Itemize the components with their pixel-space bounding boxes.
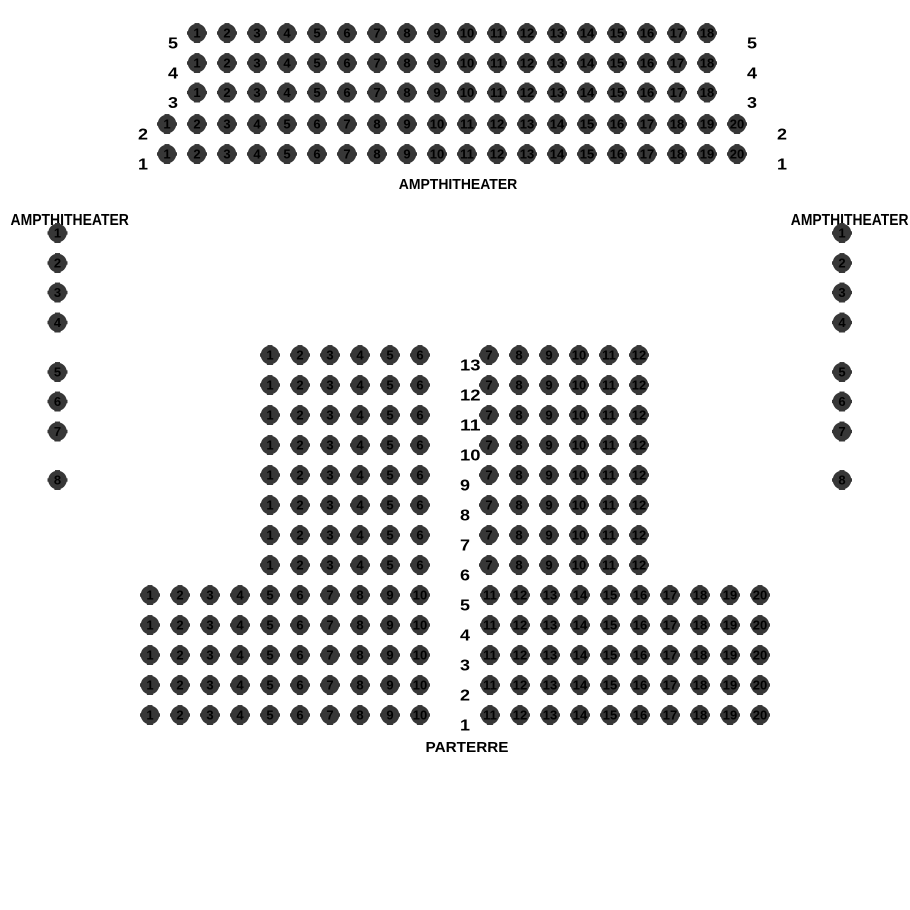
svg-text:4: 4 bbox=[356, 348, 364, 363]
svg-text:18: 18 bbox=[693, 648, 707, 663]
svg-text:11: 11 bbox=[602, 498, 616, 513]
svg-text:11: 11 bbox=[483, 678, 497, 693]
svg-text:6: 6 bbox=[416, 438, 423, 453]
svg-text:12: 12 bbox=[460, 387, 481, 404]
svg-text:10: 10 bbox=[413, 648, 427, 663]
svg-text:11: 11 bbox=[602, 468, 616, 483]
svg-text:20: 20 bbox=[753, 708, 767, 723]
svg-text:5: 5 bbox=[386, 558, 393, 573]
svg-text:17: 17 bbox=[663, 588, 677, 603]
svg-text:1: 1 bbox=[54, 226, 61, 241]
svg-text:8: 8 bbox=[373, 117, 380, 132]
svg-text:9: 9 bbox=[386, 708, 393, 723]
svg-text:17: 17 bbox=[663, 618, 677, 633]
svg-text:5: 5 bbox=[386, 438, 393, 453]
svg-text:12: 12 bbox=[632, 528, 646, 543]
svg-text:8: 8 bbox=[373, 147, 380, 162]
svg-text:5: 5 bbox=[168, 35, 178, 52]
svg-text:11: 11 bbox=[490, 26, 504, 41]
svg-text:12: 12 bbox=[520, 56, 534, 71]
svg-text:16: 16 bbox=[633, 678, 647, 693]
svg-text:4: 4 bbox=[356, 528, 364, 543]
svg-text:11: 11 bbox=[602, 378, 616, 393]
svg-text:15: 15 bbox=[610, 56, 624, 71]
svg-text:15: 15 bbox=[603, 588, 617, 603]
svg-text:18: 18 bbox=[700, 85, 714, 100]
svg-text:2: 2 bbox=[223, 56, 230, 71]
svg-text:11: 11 bbox=[602, 348, 616, 363]
svg-text:2: 2 bbox=[296, 408, 303, 423]
svg-text:10: 10 bbox=[572, 498, 586, 513]
svg-text:3: 3 bbox=[206, 588, 213, 603]
svg-text:19: 19 bbox=[700, 117, 714, 132]
svg-text:7: 7 bbox=[373, 85, 380, 100]
svg-text:8: 8 bbox=[356, 618, 363, 633]
svg-text:1: 1 bbox=[193, 85, 200, 100]
svg-text:2: 2 bbox=[296, 468, 303, 483]
svg-text:AMPTHITHEATER: AMPTHITHEATER bbox=[791, 212, 909, 229]
svg-text:2: 2 bbox=[54, 256, 61, 271]
svg-text:3: 3 bbox=[838, 285, 845, 300]
svg-text:7: 7 bbox=[485, 408, 492, 423]
svg-text:12: 12 bbox=[632, 408, 646, 423]
svg-text:11: 11 bbox=[460, 117, 474, 132]
svg-text:2: 2 bbox=[296, 438, 303, 453]
svg-text:7: 7 bbox=[485, 528, 492, 543]
svg-text:12: 12 bbox=[632, 348, 646, 363]
svg-text:10: 10 bbox=[572, 348, 586, 363]
svg-text:4: 4 bbox=[283, 56, 291, 71]
svg-text:13: 13 bbox=[543, 618, 557, 633]
svg-text:1: 1 bbox=[838, 226, 845, 241]
svg-text:15: 15 bbox=[603, 618, 617, 633]
svg-text:5: 5 bbox=[266, 648, 273, 663]
svg-text:5: 5 bbox=[386, 378, 393, 393]
svg-text:1: 1 bbox=[460, 717, 470, 734]
svg-text:3: 3 bbox=[326, 468, 333, 483]
svg-text:7: 7 bbox=[326, 618, 333, 633]
svg-text:14: 14 bbox=[580, 56, 595, 71]
svg-text:6: 6 bbox=[460, 567, 470, 584]
svg-text:6: 6 bbox=[416, 498, 423, 513]
svg-text:5: 5 bbox=[313, 56, 320, 71]
svg-text:3: 3 bbox=[326, 558, 333, 573]
svg-text:6: 6 bbox=[313, 147, 320, 162]
svg-text:20: 20 bbox=[753, 648, 767, 663]
svg-text:13: 13 bbox=[550, 56, 564, 71]
svg-text:14: 14 bbox=[573, 588, 588, 603]
svg-text:8: 8 bbox=[403, 56, 410, 71]
svg-text:4: 4 bbox=[54, 315, 62, 330]
svg-text:1: 1 bbox=[777, 156, 787, 173]
svg-text:12: 12 bbox=[632, 468, 646, 483]
svg-text:15: 15 bbox=[580, 147, 594, 162]
svg-text:1: 1 bbox=[266, 528, 273, 543]
svg-text:5: 5 bbox=[266, 708, 273, 723]
svg-text:18: 18 bbox=[700, 56, 714, 71]
svg-text:12: 12 bbox=[513, 618, 527, 633]
svg-text:2: 2 bbox=[838, 256, 845, 271]
svg-text:18: 18 bbox=[693, 588, 707, 603]
svg-text:3: 3 bbox=[747, 95, 757, 112]
svg-text:20: 20 bbox=[730, 147, 744, 162]
svg-text:3: 3 bbox=[326, 438, 333, 453]
svg-text:9: 9 bbox=[545, 468, 552, 483]
svg-text:16: 16 bbox=[633, 588, 647, 603]
svg-text:8: 8 bbox=[515, 378, 522, 393]
svg-text:18: 18 bbox=[700, 26, 714, 41]
svg-text:1: 1 bbox=[266, 558, 273, 573]
svg-text:14: 14 bbox=[580, 85, 595, 100]
svg-text:3: 3 bbox=[460, 657, 470, 674]
svg-text:6: 6 bbox=[343, 26, 350, 41]
svg-text:2: 2 bbox=[193, 147, 200, 162]
svg-text:4: 4 bbox=[356, 468, 364, 483]
svg-text:6: 6 bbox=[54, 394, 61, 409]
svg-text:9: 9 bbox=[460, 477, 470, 494]
svg-text:1: 1 bbox=[163, 147, 170, 162]
svg-text:4: 4 bbox=[236, 708, 244, 723]
svg-text:PARTERRE: PARTERRE bbox=[426, 739, 509, 756]
svg-text:1: 1 bbox=[146, 708, 153, 723]
svg-text:5: 5 bbox=[747, 35, 757, 52]
svg-text:16: 16 bbox=[640, 56, 654, 71]
svg-text:9: 9 bbox=[545, 528, 552, 543]
svg-text:11: 11 bbox=[483, 588, 497, 603]
svg-text:9: 9 bbox=[403, 117, 410, 132]
svg-text:11: 11 bbox=[483, 618, 497, 633]
svg-text:5: 5 bbox=[54, 365, 61, 380]
svg-text:6: 6 bbox=[343, 85, 350, 100]
svg-text:9: 9 bbox=[545, 438, 552, 453]
svg-text:11: 11 bbox=[602, 528, 616, 543]
svg-text:19: 19 bbox=[700, 147, 714, 162]
svg-text:6: 6 bbox=[416, 348, 423, 363]
svg-text:19: 19 bbox=[723, 588, 737, 603]
svg-text:16: 16 bbox=[610, 147, 624, 162]
svg-text:7: 7 bbox=[326, 708, 333, 723]
svg-text:1: 1 bbox=[146, 678, 153, 693]
svg-text:AMPTHITHEATER: AMPTHITHEATER bbox=[399, 176, 518, 193]
svg-text:8: 8 bbox=[515, 528, 522, 543]
svg-text:2: 2 bbox=[296, 378, 303, 393]
svg-text:17: 17 bbox=[663, 678, 677, 693]
svg-text:9: 9 bbox=[386, 618, 393, 633]
svg-text:1: 1 bbox=[193, 26, 200, 41]
svg-text:5: 5 bbox=[266, 678, 273, 693]
svg-text:5: 5 bbox=[283, 147, 290, 162]
svg-text:2: 2 bbox=[296, 558, 303, 573]
svg-text:11: 11 bbox=[460, 147, 474, 162]
svg-text:9: 9 bbox=[545, 378, 552, 393]
svg-text:17: 17 bbox=[640, 147, 654, 162]
svg-text:14: 14 bbox=[573, 618, 588, 633]
svg-text:12: 12 bbox=[513, 588, 527, 603]
svg-text:13: 13 bbox=[460, 357, 481, 374]
svg-text:17: 17 bbox=[663, 708, 677, 723]
svg-text:9: 9 bbox=[545, 498, 552, 513]
svg-text:9: 9 bbox=[545, 408, 552, 423]
svg-text:10: 10 bbox=[430, 147, 444, 162]
svg-text:11: 11 bbox=[602, 438, 616, 453]
svg-text:9: 9 bbox=[386, 678, 393, 693]
svg-text:4: 4 bbox=[356, 558, 364, 573]
svg-text:4: 4 bbox=[253, 147, 261, 162]
svg-text:2: 2 bbox=[223, 85, 230, 100]
svg-text:5: 5 bbox=[266, 588, 273, 603]
svg-text:7: 7 bbox=[373, 26, 380, 41]
svg-text:1: 1 bbox=[193, 56, 200, 71]
svg-text:5: 5 bbox=[386, 528, 393, 543]
svg-text:2: 2 bbox=[777, 126, 787, 143]
svg-text:10: 10 bbox=[460, 26, 474, 41]
svg-text:3: 3 bbox=[253, 26, 260, 41]
svg-text:4: 4 bbox=[356, 378, 364, 393]
svg-text:16: 16 bbox=[633, 648, 647, 663]
svg-text:20: 20 bbox=[753, 618, 767, 633]
svg-text:4: 4 bbox=[356, 438, 364, 453]
svg-text:1: 1 bbox=[266, 438, 273, 453]
svg-text:3: 3 bbox=[326, 408, 333, 423]
svg-text:13: 13 bbox=[543, 588, 557, 603]
svg-text:17: 17 bbox=[670, 56, 684, 71]
svg-text:14: 14 bbox=[573, 678, 588, 693]
svg-text:18: 18 bbox=[693, 678, 707, 693]
svg-text:15: 15 bbox=[603, 648, 617, 663]
svg-text:12: 12 bbox=[513, 648, 527, 663]
svg-text:1: 1 bbox=[138, 156, 148, 173]
svg-text:19: 19 bbox=[723, 618, 737, 633]
svg-text:5: 5 bbox=[313, 85, 320, 100]
svg-text:12: 12 bbox=[520, 26, 534, 41]
svg-text:2: 2 bbox=[176, 588, 183, 603]
svg-text:8: 8 bbox=[356, 708, 363, 723]
svg-text:16: 16 bbox=[633, 618, 647, 633]
svg-text:5: 5 bbox=[266, 618, 273, 633]
svg-text:13: 13 bbox=[550, 26, 564, 41]
svg-text:14: 14 bbox=[573, 708, 588, 723]
svg-text:10: 10 bbox=[413, 588, 427, 603]
svg-text:3: 3 bbox=[326, 348, 333, 363]
svg-text:19: 19 bbox=[723, 678, 737, 693]
svg-text:7: 7 bbox=[373, 56, 380, 71]
svg-text:7: 7 bbox=[326, 648, 333, 663]
svg-text:7: 7 bbox=[485, 378, 492, 393]
svg-text:9: 9 bbox=[545, 348, 552, 363]
svg-text:16: 16 bbox=[640, 26, 654, 41]
svg-text:5: 5 bbox=[386, 348, 393, 363]
svg-text:3: 3 bbox=[326, 528, 333, 543]
svg-text:9: 9 bbox=[386, 648, 393, 663]
svg-text:2: 2 bbox=[176, 678, 183, 693]
svg-text:7: 7 bbox=[485, 498, 492, 513]
svg-text:8: 8 bbox=[515, 438, 522, 453]
svg-text:6: 6 bbox=[296, 678, 303, 693]
svg-text:12: 12 bbox=[490, 117, 504, 132]
svg-text:18: 18 bbox=[693, 708, 707, 723]
svg-text:1: 1 bbox=[163, 117, 170, 132]
svg-text:11: 11 bbox=[490, 56, 504, 71]
svg-text:6: 6 bbox=[313, 117, 320, 132]
svg-text:17: 17 bbox=[670, 85, 684, 100]
svg-text:8: 8 bbox=[403, 85, 410, 100]
svg-text:12: 12 bbox=[632, 558, 646, 573]
svg-text:8: 8 bbox=[356, 648, 363, 663]
svg-text:11: 11 bbox=[602, 558, 616, 573]
svg-text:13: 13 bbox=[543, 708, 557, 723]
svg-text:8: 8 bbox=[515, 558, 522, 573]
svg-text:12: 12 bbox=[632, 378, 646, 393]
svg-text:4: 4 bbox=[253, 117, 261, 132]
svg-text:10: 10 bbox=[572, 558, 586, 573]
svg-text:6: 6 bbox=[296, 708, 303, 723]
svg-text:11: 11 bbox=[602, 408, 616, 423]
svg-text:9: 9 bbox=[403, 147, 410, 162]
svg-text:10: 10 bbox=[460, 85, 474, 100]
svg-text:20: 20 bbox=[730, 117, 744, 132]
svg-text:19: 19 bbox=[723, 648, 737, 663]
svg-text:6: 6 bbox=[296, 618, 303, 633]
svg-text:3: 3 bbox=[206, 708, 213, 723]
svg-text:2: 2 bbox=[223, 26, 230, 41]
svg-text:14: 14 bbox=[550, 117, 565, 132]
svg-text:8: 8 bbox=[54, 473, 61, 488]
svg-text:3: 3 bbox=[54, 285, 61, 300]
svg-text:4: 4 bbox=[460, 627, 470, 644]
svg-text:10: 10 bbox=[572, 528, 586, 543]
svg-text:2: 2 bbox=[296, 498, 303, 513]
svg-text:6: 6 bbox=[296, 648, 303, 663]
svg-text:9: 9 bbox=[433, 56, 440, 71]
svg-text:2: 2 bbox=[460, 687, 470, 704]
svg-text:1: 1 bbox=[266, 348, 273, 363]
svg-text:9: 9 bbox=[433, 26, 440, 41]
svg-text:4: 4 bbox=[356, 498, 364, 513]
svg-text:7: 7 bbox=[485, 468, 492, 483]
svg-text:4: 4 bbox=[283, 85, 291, 100]
svg-text:8: 8 bbox=[838, 473, 845, 488]
svg-text:10: 10 bbox=[572, 408, 586, 423]
svg-text:15: 15 bbox=[603, 708, 617, 723]
svg-text:4: 4 bbox=[236, 588, 244, 603]
svg-text:6: 6 bbox=[838, 394, 845, 409]
svg-text:10: 10 bbox=[460, 447, 481, 464]
svg-text:17: 17 bbox=[640, 117, 654, 132]
svg-text:2: 2 bbox=[176, 618, 183, 633]
svg-text:18: 18 bbox=[693, 618, 707, 633]
svg-text:4: 4 bbox=[236, 678, 244, 693]
svg-text:6: 6 bbox=[416, 528, 423, 543]
svg-text:13: 13 bbox=[520, 117, 534, 132]
svg-text:6: 6 bbox=[416, 558, 423, 573]
svg-text:2: 2 bbox=[176, 708, 183, 723]
svg-text:12: 12 bbox=[632, 438, 646, 453]
svg-text:7: 7 bbox=[485, 558, 492, 573]
svg-text:7: 7 bbox=[343, 117, 350, 132]
svg-text:5: 5 bbox=[386, 498, 393, 513]
svg-text:12: 12 bbox=[632, 498, 646, 513]
svg-text:7: 7 bbox=[460, 537, 470, 554]
svg-text:4: 4 bbox=[236, 648, 244, 663]
svg-text:16: 16 bbox=[633, 708, 647, 723]
svg-text:3: 3 bbox=[206, 648, 213, 663]
svg-text:9: 9 bbox=[433, 85, 440, 100]
svg-text:4: 4 bbox=[168, 65, 178, 82]
svg-text:2: 2 bbox=[296, 528, 303, 543]
svg-text:12: 12 bbox=[513, 708, 527, 723]
svg-text:10: 10 bbox=[413, 618, 427, 633]
svg-text:5: 5 bbox=[386, 408, 393, 423]
svg-text:5: 5 bbox=[283, 117, 290, 132]
svg-text:15: 15 bbox=[610, 85, 624, 100]
svg-text:14: 14 bbox=[550, 147, 565, 162]
svg-text:8: 8 bbox=[515, 468, 522, 483]
svg-text:3: 3 bbox=[168, 95, 178, 112]
svg-text:19: 19 bbox=[723, 708, 737, 723]
svg-text:6: 6 bbox=[416, 408, 423, 423]
svg-text:4: 4 bbox=[283, 26, 291, 41]
svg-text:15: 15 bbox=[580, 117, 594, 132]
svg-text:13: 13 bbox=[550, 85, 564, 100]
svg-text:5: 5 bbox=[386, 468, 393, 483]
svg-text:7: 7 bbox=[343, 147, 350, 162]
svg-text:10: 10 bbox=[572, 378, 586, 393]
svg-text:2: 2 bbox=[296, 348, 303, 363]
svg-text:2: 2 bbox=[138, 126, 148, 143]
svg-text:10: 10 bbox=[572, 468, 586, 483]
svg-text:18: 18 bbox=[670, 117, 684, 132]
svg-text:14: 14 bbox=[580, 26, 595, 41]
svg-text:12: 12 bbox=[513, 678, 527, 693]
svg-text:3: 3 bbox=[223, 147, 230, 162]
svg-text:8: 8 bbox=[356, 588, 363, 603]
svg-text:14: 14 bbox=[573, 648, 588, 663]
svg-text:1: 1 bbox=[146, 618, 153, 633]
svg-text:3: 3 bbox=[206, 618, 213, 633]
svg-text:10: 10 bbox=[572, 438, 586, 453]
svg-text:2: 2 bbox=[176, 648, 183, 663]
svg-text:5: 5 bbox=[313, 26, 320, 41]
svg-text:18: 18 bbox=[670, 147, 684, 162]
svg-text:10: 10 bbox=[460, 56, 474, 71]
svg-text:3: 3 bbox=[326, 498, 333, 513]
svg-text:11: 11 bbox=[490, 85, 504, 100]
svg-text:17: 17 bbox=[663, 648, 677, 663]
svg-text:16: 16 bbox=[640, 85, 654, 100]
svg-text:6: 6 bbox=[416, 378, 423, 393]
svg-text:1: 1 bbox=[146, 588, 153, 603]
svg-text:8: 8 bbox=[515, 498, 522, 513]
svg-text:7: 7 bbox=[485, 348, 492, 363]
svg-text:9: 9 bbox=[545, 558, 552, 573]
svg-text:15: 15 bbox=[603, 678, 617, 693]
svg-text:8: 8 bbox=[403, 26, 410, 41]
svg-text:3: 3 bbox=[253, 56, 260, 71]
svg-text:4: 4 bbox=[356, 408, 364, 423]
svg-text:12: 12 bbox=[490, 147, 504, 162]
svg-text:7: 7 bbox=[485, 438, 492, 453]
svg-text:10: 10 bbox=[430, 117, 444, 132]
svg-text:5: 5 bbox=[838, 365, 845, 380]
svg-text:11: 11 bbox=[460, 417, 481, 434]
svg-text:1: 1 bbox=[266, 378, 273, 393]
svg-text:11: 11 bbox=[483, 708, 497, 723]
svg-text:7: 7 bbox=[326, 678, 333, 693]
svg-text:AMPTHITHEATER: AMPTHITHEATER bbox=[11, 212, 130, 229]
svg-text:10: 10 bbox=[413, 678, 427, 693]
svg-text:13: 13 bbox=[543, 678, 557, 693]
svg-text:7: 7 bbox=[326, 588, 333, 603]
